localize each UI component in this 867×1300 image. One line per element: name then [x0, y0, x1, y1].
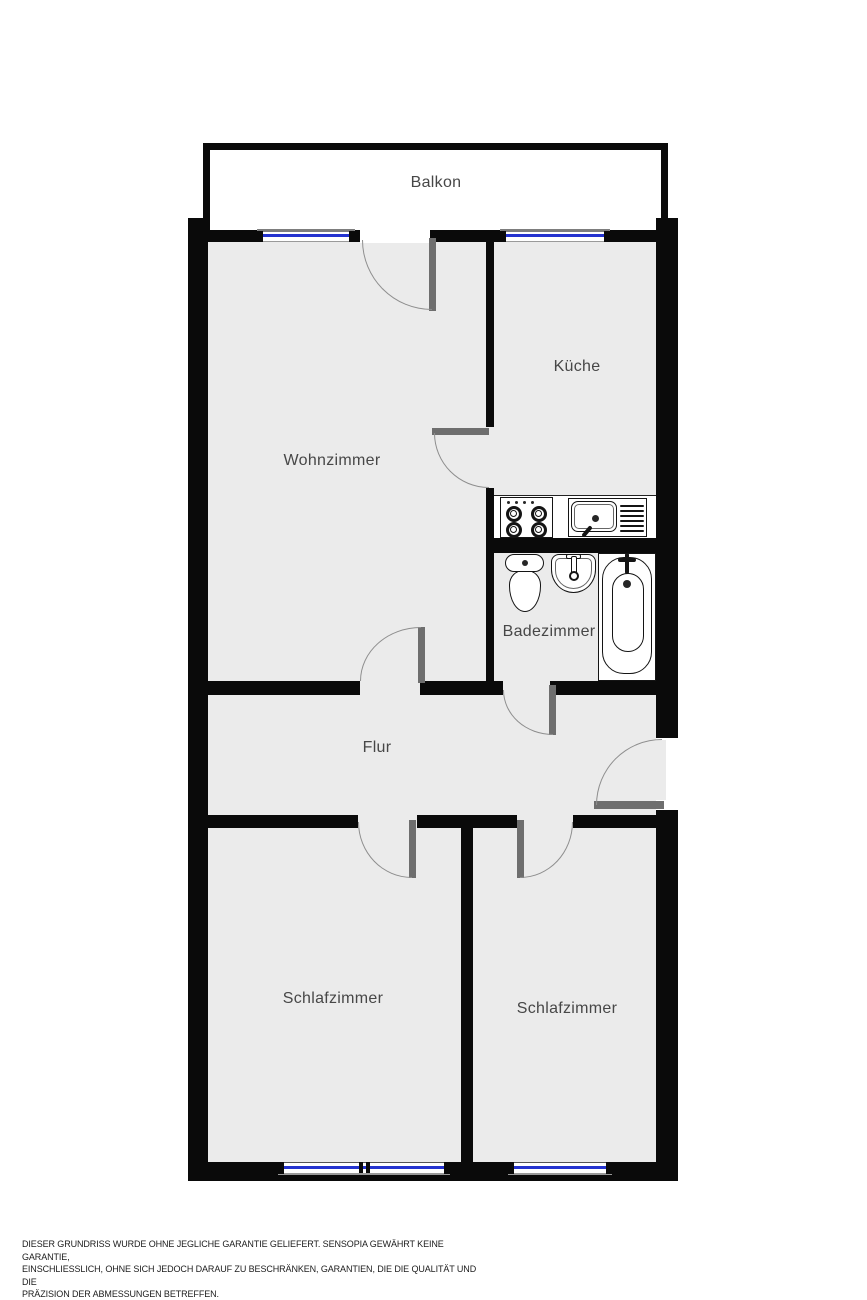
- window-end-cap: [604, 231, 610, 242]
- wall-wohnzimmer-kueche-upper: [486, 242, 494, 427]
- window-end-cap: [508, 1162, 514, 1174]
- wall-right-lower: [656, 810, 678, 1181]
- room-label-kueche: Küche: [554, 358, 601, 376]
- sink-drain: [592, 515, 599, 522]
- wall-schlafzimmer-divider: [461, 815, 473, 1162]
- window-end-cap: [349, 231, 355, 242]
- window-glass: [511, 1166, 609, 1169]
- wall-flur-bottom-c: [573, 815, 678, 828]
- window-schlafzimmer-links: [278, 1162, 450, 1175]
- room-label-flur: Flur: [363, 739, 392, 757]
- wall-wohnzimmer-kueche-lower: [486, 488, 494, 695]
- wall-left: [188, 218, 208, 1181]
- disclaimer-line: EINSCHLIESSLICH, OHNE SICH JEDOCH DARAUF…: [22, 1263, 482, 1288]
- room-label-schlafzimmer-rechts: Schlafzimmer: [517, 1000, 618, 1018]
- bathtub-faucet-handle: [618, 558, 636, 562]
- floor-plan: Balkon: [0, 0, 867, 1300]
- disclaimer-line: PRÄZISION DER ABMESSUNGEN BETREFFEN.: [22, 1288, 482, 1300]
- stove-knob: [507, 501, 510, 504]
- stove-burner: [531, 506, 547, 522]
- window-end-cap: [500, 231, 506, 242]
- wall-flur-top-b: [420, 681, 503, 695]
- wall-kueche-bad: [486, 538, 656, 553]
- sink-drainboard: [620, 505, 644, 532]
- toilet-flush-button: [522, 560, 528, 566]
- room-label-balkon: Balkon: [411, 174, 462, 192]
- kitchen-sink-icon: [568, 498, 647, 537]
- window-glass: [503, 234, 607, 237]
- stove-burner: [506, 522, 522, 538]
- stove-burner: [531, 522, 547, 538]
- window-end-cap: [257, 231, 263, 242]
- sink-basin: [571, 501, 617, 532]
- room-label-badezimmer: Badezimmer: [503, 623, 596, 641]
- disclaimer-text: DIESER GRUNDRISS WURDE OHNE JEGLICHE GAR…: [22, 1238, 482, 1300]
- window-kueche: [500, 229, 610, 242]
- window-schlafzimmer-rechts: [508, 1162, 612, 1175]
- bathtub-drain: [623, 580, 631, 588]
- window-end-cap: [606, 1162, 612, 1174]
- window-end-cap: [278, 1162, 284, 1174]
- stove-knob: [531, 501, 534, 504]
- room-label-wohnzimmer: Wohnzimmer: [284, 452, 381, 470]
- window-mullion: [359, 1162, 370, 1173]
- disclaimer-line: DIESER GRUNDRISS WURDE OHNE JEGLICHE GAR…: [22, 1238, 482, 1263]
- washbasin-knob: [569, 571, 579, 581]
- wall-right-upper: [656, 218, 678, 738]
- stove-knob: [515, 501, 518, 504]
- stove-knob: [523, 501, 526, 504]
- window-wohnzimmer: [257, 229, 355, 242]
- wall-flur-top-a: [208, 681, 360, 695]
- bathtub-faucet: [625, 553, 629, 574]
- room-label-schlafzimmer-links: Schlafzimmer: [283, 990, 384, 1008]
- window-glass: [260, 234, 352, 237]
- wall-flur-bottom-a: [208, 815, 358, 828]
- window-end-cap: [444, 1162, 450, 1174]
- wall-flur-top-c: [550, 681, 678, 695]
- stove-icon: [500, 497, 553, 538]
- apartment-floor: [208, 242, 656, 1162]
- stove-burner: [506, 506, 522, 522]
